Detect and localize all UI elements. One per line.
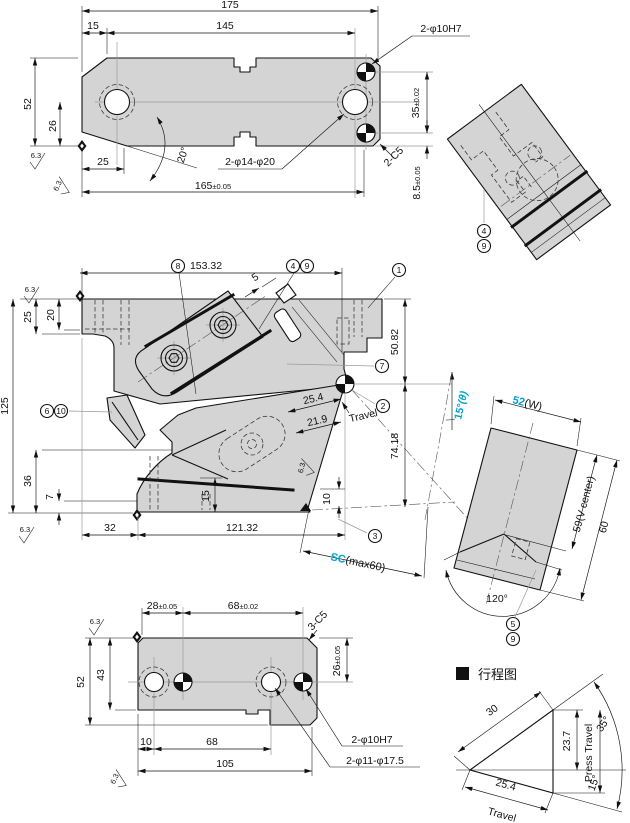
balloon-4: 4: [287, 260, 300, 273]
dim-15: 15: [200, 490, 212, 502]
svg-text:6.3: 6.3: [25, 285, 35, 294]
dim-52w: 52(W): [511, 394, 543, 413]
dim-52: 52: [75, 676, 87, 688]
dim-32: 32: [104, 522, 116, 534]
section-square-icon: [456, 667, 469, 680]
section-title: 行程图: [478, 667, 517, 682]
dim-28: 28±0.05: [147, 600, 177, 612]
dim-7: 7: [44, 494, 56, 500]
surface-finish-mark: 6.3: [108, 769, 131, 790]
label-15deg-theta: 15°(θ): [452, 389, 470, 420]
balloon-10: 10: [55, 405, 68, 418]
label-press-travel: Press Travel: [583, 724, 595, 782]
dim-254: 25.4: [494, 777, 517, 794]
svg-text:9: 9: [482, 241, 487, 251]
dim-25: 25: [97, 156, 109, 168]
dim-68-upper: 68±0.02: [228, 600, 258, 612]
label-2c5: 2-C5: [382, 144, 407, 169]
dim-15332: 153.32: [190, 260, 222, 272]
dim-5082: 50.82: [389, 329, 401, 355]
svg-text:9: 9: [511, 634, 516, 644]
svg-text:1: 1: [397, 265, 402, 275]
bottom-view: 28±0.05 68±0.02 3-C5 26±0.05 52 43 10 68…: [75, 600, 420, 790]
dim-15: 15: [87, 20, 99, 32]
dim-125: 125: [0, 397, 11, 415]
svg-text:6.3: 6.3: [31, 151, 41, 160]
dim-237: 23.7: [561, 731, 573, 752]
svg-text:6.3: 6.3: [20, 525, 30, 534]
travel-diagram: 行程图 30 23.7 Press Travel 35° 15° 25.4 Tr…: [454, 667, 626, 823]
dowel-target-icon: [174, 673, 192, 691]
balloon-7: 7: [376, 360, 389, 373]
dim-43: 43: [95, 669, 107, 681]
dim-35: 35±0.02: [410, 88, 422, 118]
label-dowels: 2-φ10H7: [351, 734, 392, 746]
svg-text:4: 4: [291, 261, 296, 271]
svg-text:4: 4: [482, 226, 487, 236]
svg-text:9: 9: [305, 261, 310, 271]
plate-outline: [138, 638, 317, 725]
balloon-4: 4: [478, 225, 491, 238]
dowel-target-icon: [336, 375, 354, 393]
dimension-lines: [454, 674, 626, 813]
balloon-6: 6: [41, 405, 54, 418]
label-travel: Travel: [486, 805, 517, 823]
svg-text:5: 5: [511, 619, 516, 629]
dim-120deg: 120°: [486, 593, 508, 605]
dim-52: 52: [22, 98, 34, 110]
dim-10: 10: [321, 493, 333, 505]
svg-text:7: 7: [380, 361, 385, 371]
dim-165: 165±0.05: [195, 180, 231, 192]
label-holes: 2-φ14-φ20: [225, 156, 275, 168]
iso-view: 4 9: [442, 77, 617, 268]
vblock-view: 5 9 52(W) 59(V center) 60 120°: [444, 394, 620, 645]
dim-68: 68: [206, 736, 218, 748]
cam-driver-wedge: [107, 395, 145, 448]
front-view: 175 15 145 52 26 25 20° 165±0.05 2-φ14-φ…: [22, 0, 470, 200]
balloon-9: 9: [301, 260, 314, 273]
dim-85: 8.5±0.05: [411, 166, 423, 199]
dim-20deg: 20°: [175, 146, 191, 165]
balloon-5: 5: [507, 618, 520, 631]
dim-20: 20: [45, 309, 57, 321]
label-holes: 2-φ11-φ17.5: [346, 755, 404, 767]
balloon-3: 3: [369, 530, 382, 543]
engineering-drawing-page: 175 15 145 52 26 25 20° 165±0.05 2-φ14-φ…: [0, 0, 630, 823]
dim-175: 175: [221, 0, 239, 11]
main-view: 8 4 9 1 7 2 3 6 10 153.32 5 50.82 74.18 …: [0, 260, 487, 579]
dim-145: 145: [216, 20, 234, 32]
balloon-9: 9: [507, 633, 520, 646]
balloon-8: 8: [172, 260, 185, 273]
svg-text:6: 6: [45, 406, 50, 416]
dim-12132: 121.32: [226, 522, 258, 534]
svg-text:2: 2: [381, 401, 386, 411]
dim-7418: 74.18: [389, 433, 401, 459]
surface-finish-mark: 6.3: [89, 617, 104, 635]
dim-36: 36: [22, 475, 34, 487]
dim-26: 26: [47, 120, 59, 132]
label-3c5: 3-C5: [306, 608, 331, 633]
dim-60: 60: [597, 520, 612, 535]
dim-10: 10: [140, 736, 152, 748]
svg-text:10: 10: [56, 406, 66, 416]
dowel-target-icon: [294, 673, 312, 691]
dim-35deg: 35°: [594, 714, 613, 734]
svg-text:8: 8: [176, 261, 181, 271]
drawing-canvas: 175 15 145 52 26 25 20° 165±0.05 2-φ14-φ…: [0, 0, 630, 823]
balloon-2: 2: [377, 400, 390, 413]
label-travel: Travel: [348, 407, 379, 425]
dim-25: 25: [22, 311, 34, 323]
svg-text:6.3: 6.3: [90, 617, 100, 626]
surface-finish-mark: 6.3: [24, 285, 39, 303]
surface-finish-mark: 6.3: [51, 176, 74, 197]
balloon-1: 1: [393, 264, 406, 277]
dim-59-vcenter: 59(V center): [571, 475, 598, 534]
balloon-9: 9: [478, 240, 491, 253]
surface-finish-mark: 6.3: [19, 525, 34, 543]
svg-text:3: 3: [373, 531, 378, 541]
surface-finish-mark: 6.3: [30, 151, 45, 169]
dim-26: 26±0.05: [331, 646, 343, 676]
dim-105: 105: [216, 758, 234, 770]
label-dowels: 2-φ10H7: [420, 23, 461, 35]
label-sc-max60: SC(max60): [329, 551, 386, 574]
vblock-body: [454, 428, 577, 590]
dim-30: 30: [484, 702, 501, 719]
